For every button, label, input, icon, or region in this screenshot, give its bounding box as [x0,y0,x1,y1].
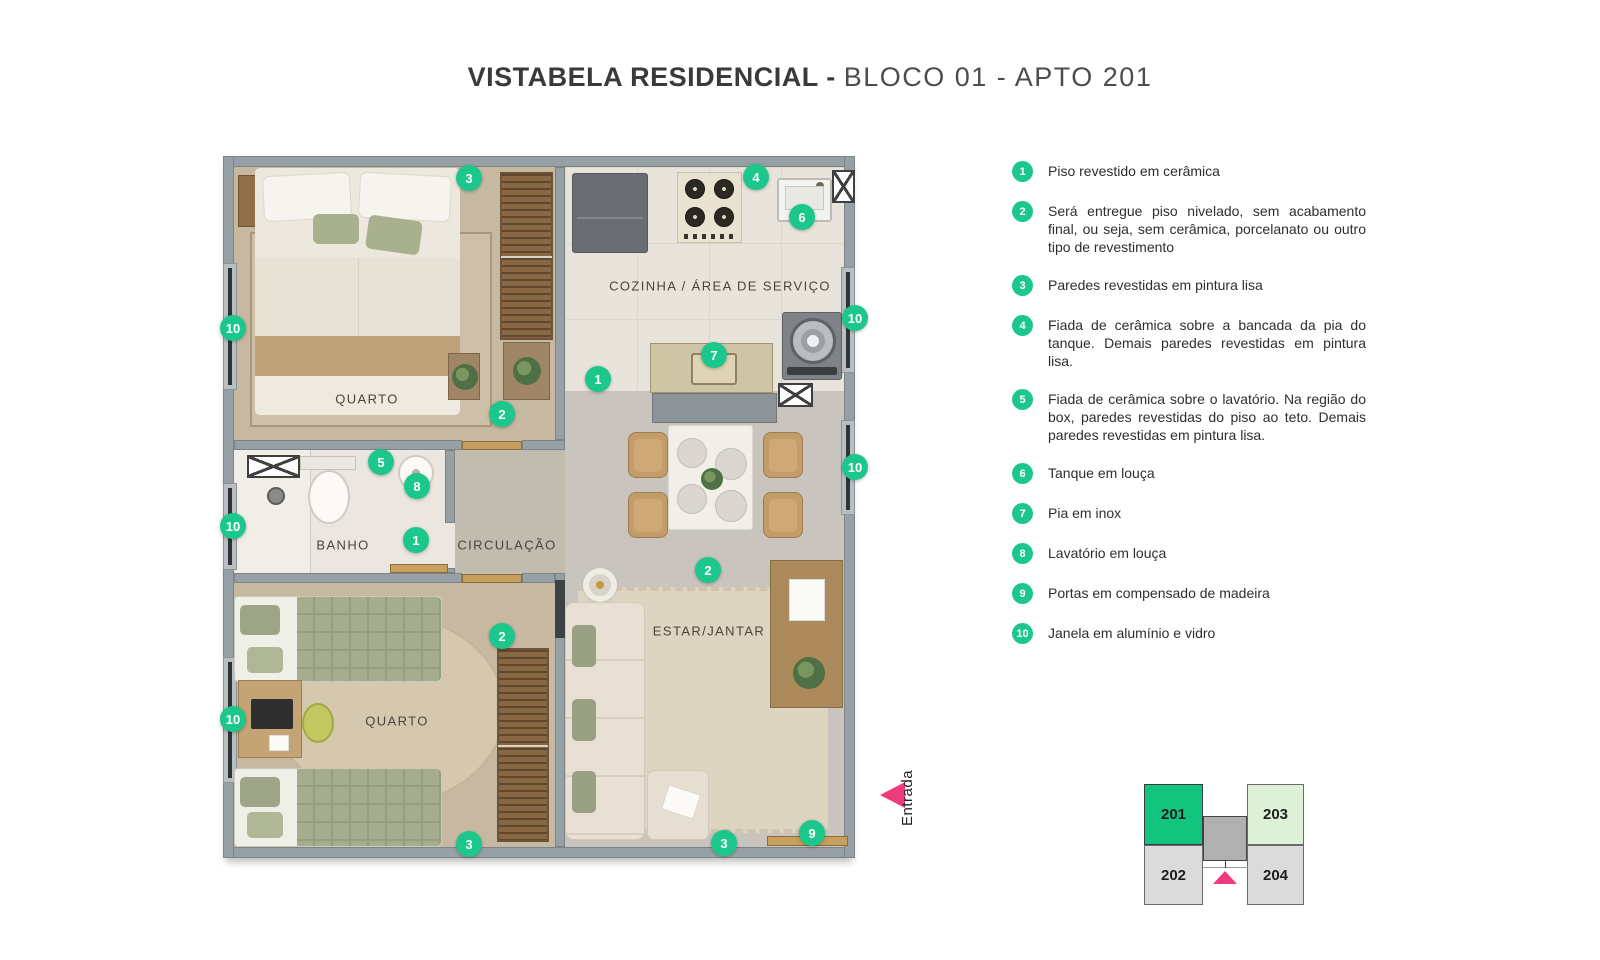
sofa [565,602,645,840]
plan-number-badge: 10 [220,706,246,732]
legend: 1 Piso revestido em cerâmica 2 Será entr… [1012,161,1366,663]
dining-chair [628,492,668,538]
dining-table [668,425,753,530]
plan-number-badge: 4 [743,164,769,190]
legend-item-text: Portas em compensado de madeira [1048,583,1270,602]
plan-number-badge: 5 [368,449,394,475]
vent-hatch-service-icon [778,383,813,407]
page-title: VISTABELA RESIDENCIAL -BLOCO 01 - APTO 2… [468,62,1153,93]
bedroom2-single-bed-bottom [234,768,442,847]
legend-item: 4 Fiada de cerâmica sobre a bancada da p… [1012,315,1366,370]
faucet-icon [816,182,824,190]
legend-item-text: Fiada de cerâmica sobre o lavatório. Na … [1048,389,1366,444]
bedroom1-plant-table [503,342,550,400]
legend-item-text: Janela em alumínio e vidro [1048,623,1215,642]
pillow-icon [247,812,283,838]
centerpiece-plant-icon [701,468,723,490]
plate-icon [677,438,707,468]
plan-number-badge: 8 [404,473,430,499]
wall-bedroom1-kitchen [555,167,565,440]
legend-number-badge: 7 [1012,503,1033,524]
standing-fan-icon [583,568,617,602]
door-bedroom1 [462,441,522,450]
floor-bathroom-doorway [445,523,455,568]
legend-number-badge: 3 [1012,275,1033,296]
bedroom2-wardrobe [497,648,549,842]
floor-corridor-opening [555,440,565,573]
plan-number-badge: 10 [842,454,868,480]
page-title-main: VISTABELA RESIDENCIAL - [468,62,836,92]
room-label: CIRCULAÇÃO [457,538,556,553]
decor-tray [789,579,825,621]
blanket [297,597,441,681]
wall-outer-bottom [223,847,855,858]
tv-console [770,560,843,708]
stove-knobs [684,234,735,239]
legend-item: 7 Pia em inox [1012,503,1366,524]
pillow-icon [240,777,280,807]
plate-icon [715,490,747,522]
wall-bedroom2-top [234,573,462,583]
open-book-icon [661,784,701,819]
washer-panel [787,367,837,375]
door-bedroom2 [462,574,522,583]
legend-number-badge: 2 [1012,201,1033,222]
toilet [308,470,350,524]
legend-item-text: Fiada de cerâmica sobre a bancada da pia… [1048,315,1366,370]
room-label: BANHO [316,538,369,553]
entrance-label: Entrada [899,760,916,826]
legend-item-text: Será entregue piso nivelado, sem acabame… [1048,201,1366,256]
legend-item-text: Lavatório em louça [1048,543,1166,562]
washing-machine [782,312,842,380]
toilet-tank [300,456,356,470]
plan-number-badge: 7 [701,342,727,368]
plant-icon [513,357,541,385]
plant-icon [452,364,478,390]
legend-number-badge: 8 [1012,543,1033,564]
bedroom2-single-bed-top [234,596,442,682]
pillow-icon [313,214,359,244]
legend-item: 6 Tanque em louça [1012,463,1366,484]
plan-number-badge: 1 [403,527,429,553]
pillow-icon [572,699,596,741]
page-title-sub: BLOCO 01 - APTO 201 [844,62,1153,92]
room-label: COZINHA / ÁREA DE SERVIÇO [609,279,831,294]
wall-bedroom1-bottom [234,440,462,450]
plan-number-badge: 3 [456,831,482,857]
blanket-band [255,336,460,378]
wall-bathroom-right [445,450,455,523]
burner-icon [714,179,734,199]
washer-drum [801,329,825,353]
plan-number-badge: 1 [585,366,611,392]
plan-number-badge: 6 [789,204,815,230]
legend-number-badge: 1 [1012,161,1033,182]
living-wall-panel [555,580,565,638]
unit-201-cell: 201 [1144,784,1203,845]
plan-number-badge: 10 [220,513,246,539]
stove [677,172,742,243]
pillow-icon [572,625,596,667]
shower-head-icon [267,487,285,505]
unit-204-cell: 204 [1247,845,1304,905]
legend-item: 10 Janela em alumínio e vidro [1012,623,1366,644]
plan-number-badge: 3 [711,830,737,856]
bedroom1-wardrobe [500,172,553,340]
corridor-plant-table [448,353,480,400]
floor-corridor [455,440,555,583]
door-bathroom [390,564,448,573]
plan-number-badge: 10 [842,305,868,331]
unit-202-cell: 202 [1144,845,1203,905]
plan-number-badge: 2 [695,557,721,583]
legend-number-badge: 6 [1012,463,1033,484]
plan-number-badge: 9 [799,820,825,846]
desk [238,680,302,758]
bedroom1-double-bed [255,168,460,415]
legend-item-text: Pia em inox [1048,503,1121,522]
legend-number-badge: 9 [1012,583,1033,604]
unit-core-block [1203,816,1247,861]
fridge [572,173,648,253]
plan-number-badge: 3 [456,165,482,191]
legend-item-text: Piso revestido em cerâmica [1048,161,1220,180]
floor-plan: QUARTOCOZINHA / ÁREA DE SERVIÇOBANHOCIRC… [223,156,855,858]
unit-map-tick [1225,860,1226,868]
legend-item-text: Tanque em louça [1048,463,1155,482]
dining-chair [763,492,803,538]
plant-icon [793,657,825,689]
kitchen-counter-base [652,393,777,423]
wall-bedroom1-bottom-stub [522,440,565,450]
plan-number-badge: 2 [489,623,515,649]
plan-number-badge: 10 [220,315,246,341]
plan-number-badge: 2 [489,401,515,427]
legend-number-badge: 4 [1012,315,1033,336]
legend-item: 3 Paredes revestidas em pintura lisa [1012,275,1366,296]
unit-map-entrance-marker-icon [1213,871,1237,884]
vent-hatch-kitchen-icon [832,170,855,203]
vent-hatch-bathroom-icon [247,455,300,478]
legend-item: 9 Portas em compensado de madeira [1012,583,1366,604]
legend-item: 1 Piso revestido em cerâmica [1012,161,1366,182]
blanket [297,769,441,846]
pillow-icon [240,605,280,635]
pillow-icon [572,771,596,813]
block-unit-map: 201 202 203 204 [1120,758,1320,918]
duvet [255,258,460,338]
pillow-icon [247,647,283,673]
pillow-icon [365,214,423,255]
sofa-chaise [647,770,709,840]
desk-chair [302,703,334,743]
unit-203-cell: 203 [1247,784,1304,845]
legend-item: 5 Fiada de cerâmica sobre o lavatório. N… [1012,389,1366,444]
dining-chair [763,432,803,478]
burner-icon [714,207,734,227]
wall-bedroom2-top-stub [522,573,555,583]
plate-icon [677,484,707,514]
legend-item: 8 Lavatório em louça [1012,543,1366,564]
legend-item: 2 Será entregue piso nivelado, sem acaba… [1012,201,1366,256]
burner-icon [685,207,705,227]
laptop-icon [251,699,293,729]
legend-item-text: Paredes revestidas em pintura lisa [1048,275,1263,294]
room-label: QUARTO [335,392,399,407]
room-label: ESTAR/JANTAR [653,624,765,639]
paper-icon [269,735,289,751]
room-label: QUARTO [365,714,429,729]
legend-number-badge: 10 [1012,623,1033,644]
legend-number-badge: 5 [1012,389,1033,410]
dining-chair [628,432,668,478]
burner-icon [685,179,705,199]
